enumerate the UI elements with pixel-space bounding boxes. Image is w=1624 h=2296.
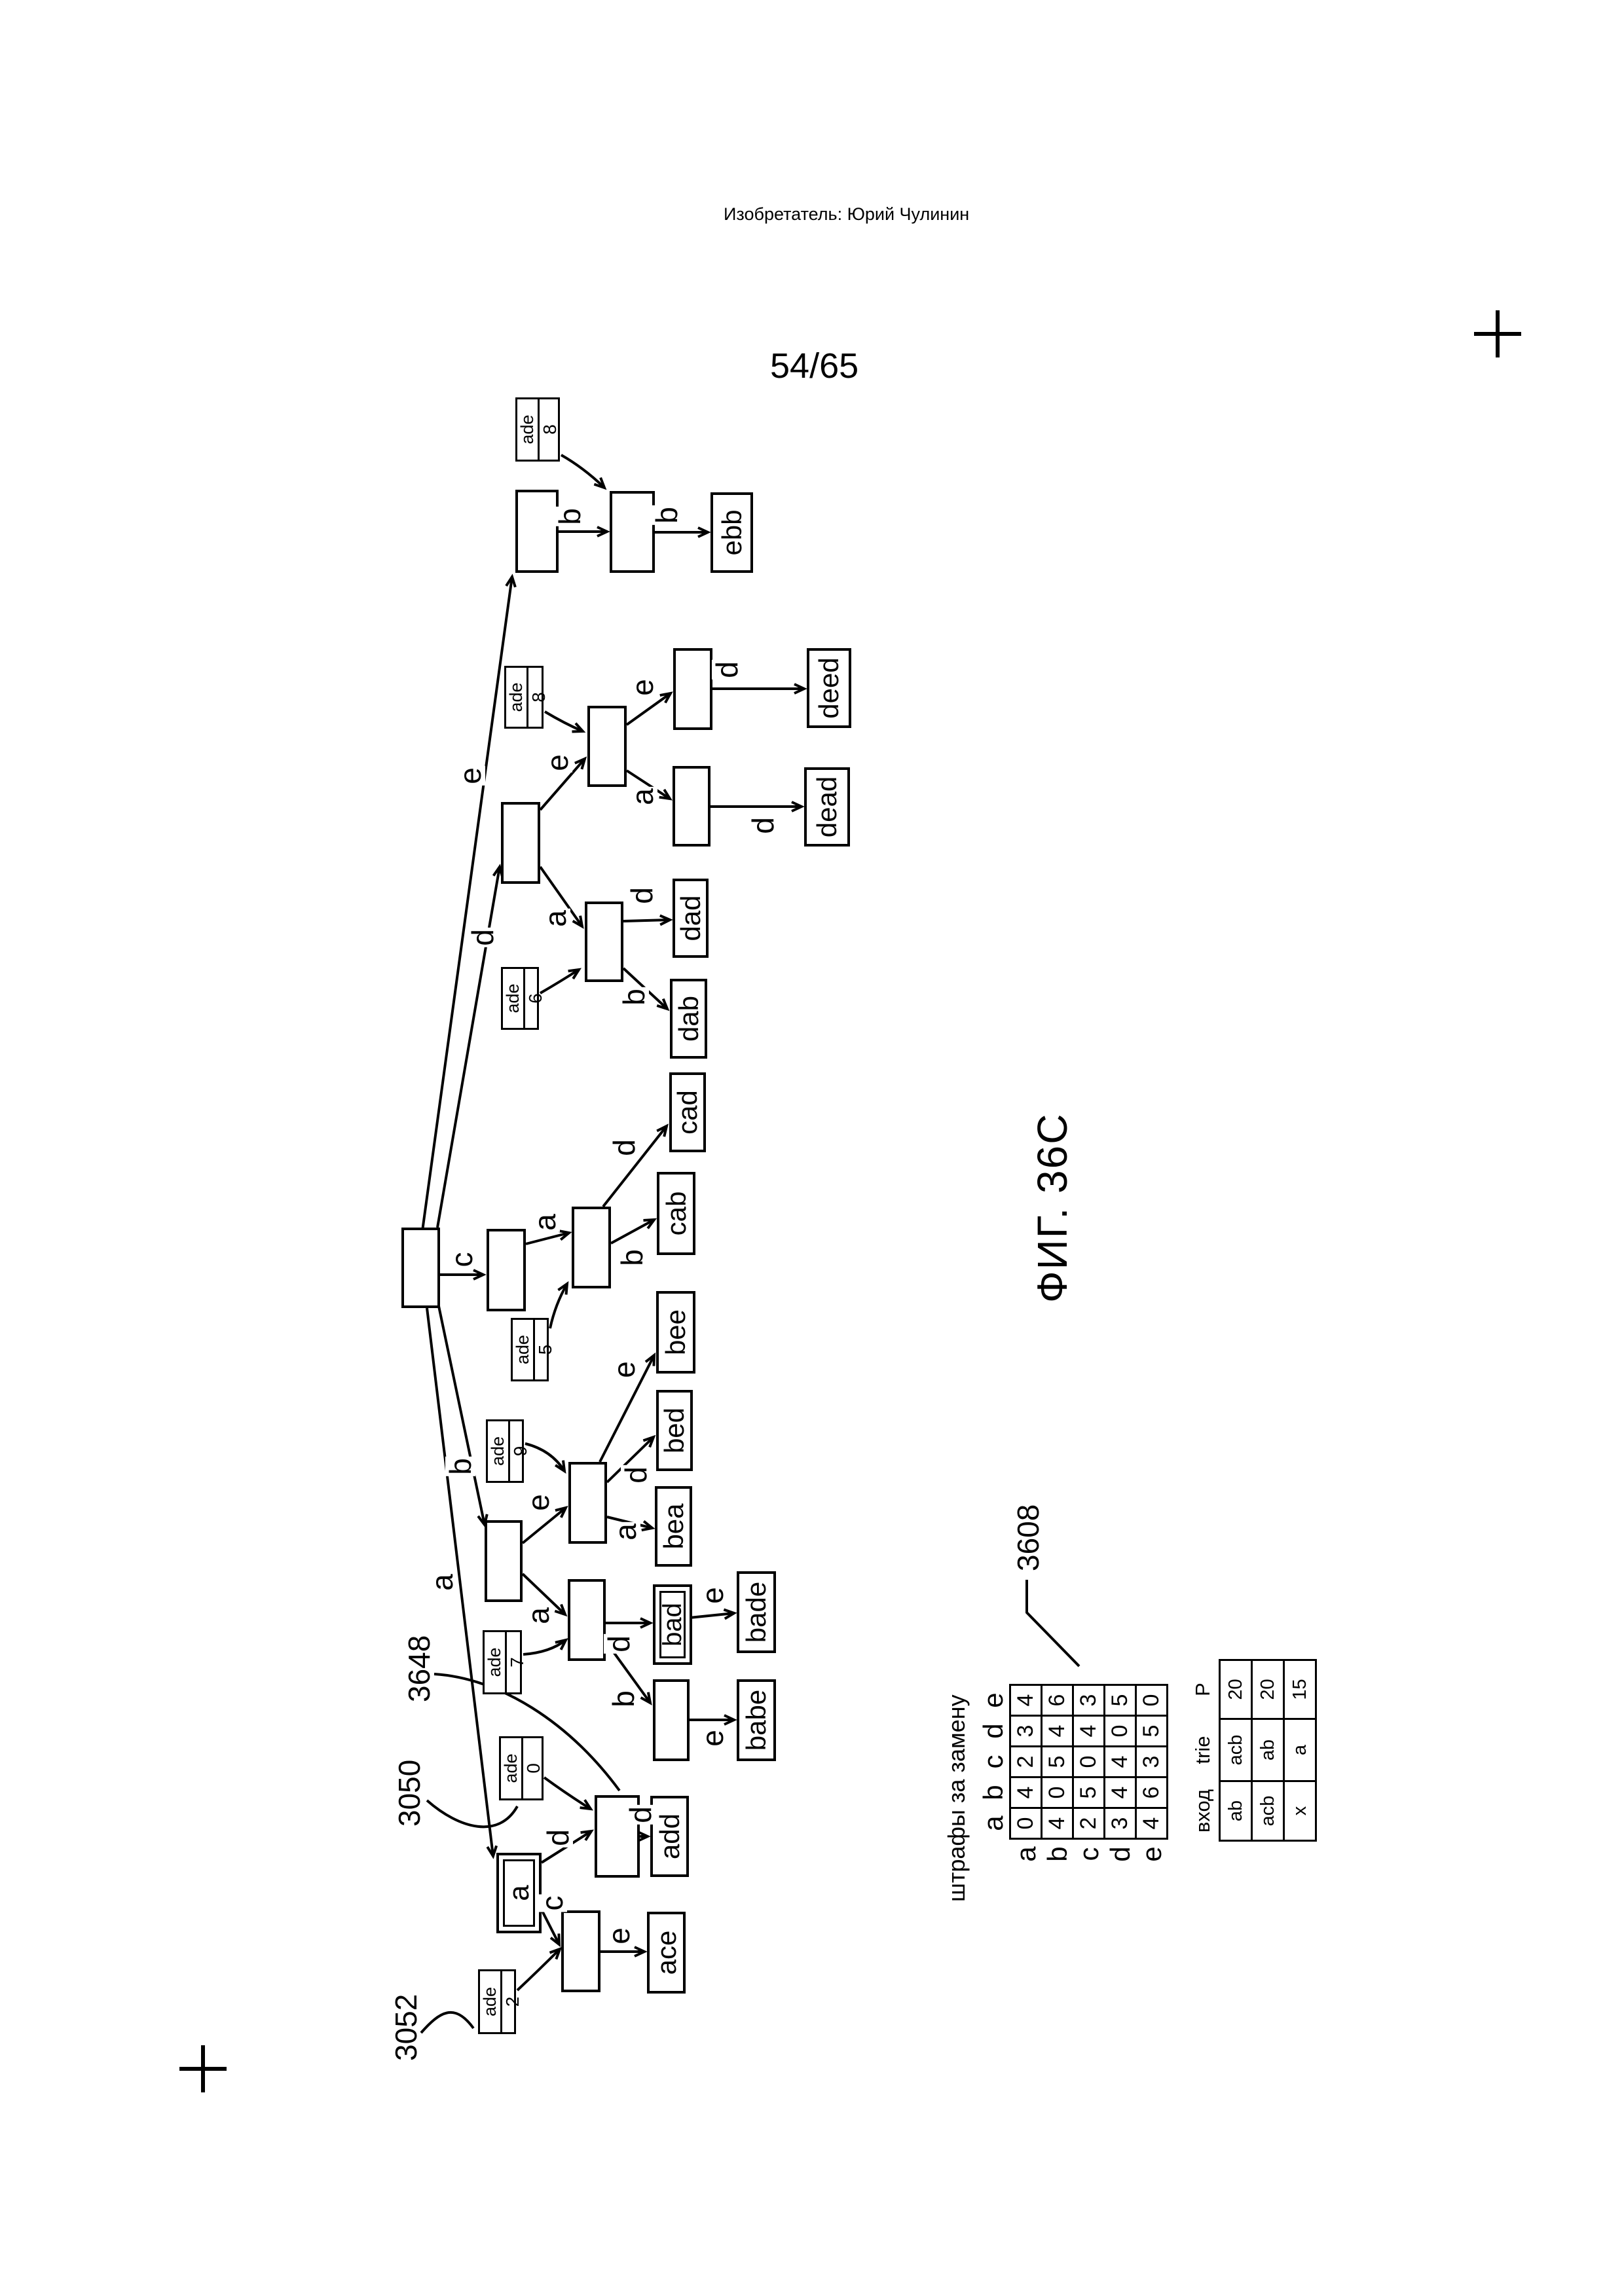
row-header: e [1136,1839,1168,1869]
table-cell: 5 [1105,1685,1136,1716]
leaf-bee: bee [656,1291,695,1374]
col-header: a [978,1808,1010,1839]
trie-node-root [401,1228,440,1308]
table-cell: 4 [1073,1716,1105,1747]
input-table-header: P [1187,1660,1220,1719]
edge-label-de-dea: a [627,787,657,807]
trie-node-b [485,1520,523,1602]
table-cell: 5 [1136,1716,1168,1747]
edge-label-b-ba: a [523,1606,553,1626]
edge-da-dad [623,920,670,921]
edge-a-ac [542,1910,559,1944]
ade-box-0-value: 0 [523,1738,544,1798]
ade-box-8e: ade 8 [515,397,560,462]
edge-root-e [422,577,512,1231]
edge-label-dee-deed: d [712,660,742,680]
table-cell: ab [1252,1719,1284,1781]
leaf-ace: ace [647,1912,686,1994]
leaf-dead: dead [804,767,850,847]
ade2-arrow [517,1949,560,1990]
ade7-arrow [523,1640,566,1654]
ade-box-8e-label: ade [517,399,540,460]
row-header: d [1105,1839,1136,1869]
edge-label-root-d: d [468,928,498,947]
ade8e-arrow [561,455,604,488]
substitution-table: a b c d e a 0 4 2 3 4 b 4 0 5 4 6 [978,1684,1168,1868]
table-cell: 4 [1042,1808,1073,1839]
col-header: e [978,1685,1010,1716]
edge-label-d-da: a [540,909,570,928]
trie-diagram: a ace add babe bad bade bea bed bee cab … [0,0,1624,2296]
leaf-bad-label: bad [659,1591,686,1658]
ade-box-6-value: 6 [525,969,546,1028]
ade-box-9-label: ade [488,1421,510,1481]
edge-label-b-be: e [523,1493,553,1512]
substitution-table-title: штрафы за замену [943,1694,970,1902]
leaf-dab: dab [670,979,707,1059]
ade-box-2-label: ade [480,1971,502,2032]
edge-bad-bade [690,1613,734,1618]
leaf-dad: dad [673,879,709,958]
ade9-arrow [525,1444,564,1471]
edge-label-root-c: c [447,1251,477,1269]
edge-label-c-ca: a [530,1212,560,1232]
trie-node-d [501,802,540,884]
table-cell: 0 [1105,1716,1136,1747]
table-cell: 4 [1136,1808,1168,1839]
leaf-cad: cad [669,1072,706,1152]
table-cell: 3 [1010,1716,1042,1747]
table-cell: 15 [1284,1660,1316,1719]
ade0-arrow [544,1777,591,1809]
edge-label-root-b: b [445,1457,475,1476]
ade-box-9: ade 9 [486,1419,524,1483]
trie-node-c [487,1229,526,1311]
table-cell: 4 [1010,1685,1042,1716]
edge-label-d-de: e [542,753,572,773]
leaf-bed: bed [656,1390,693,1471]
edge-ca-cab [611,1220,654,1243]
ade-box-8d-value: 8 [528,668,549,727]
trie-node-be [568,1462,607,1544]
table-cell: 3 [1073,1685,1105,1716]
ade-box-7-value: 7 [507,1632,528,1692]
table-cell: 3 [1105,1808,1136,1839]
col-header: b [978,1777,1010,1808]
input-table-header: trie [1187,1719,1220,1781]
ade-box-6-label: ade [503,969,525,1028]
ade-box-2: ade 2 [478,1969,516,2034]
edge-label-da-dad: d [627,886,657,905]
edge-label-da-dab: b [619,987,649,1007]
table-cell: 20 [1220,1660,1252,1719]
patent-figure-page: Изобретатель: Юрий Чулинин 54/65 [0,0,1624,2296]
edge-label-eb-ebb: b [652,505,682,525]
edge-de-dee [627,693,671,725]
trie-node-dea [673,766,710,847]
edge-label-ad-add: d [625,1805,655,1825]
trie-node-eb [610,491,655,573]
edge-label-a-ad: d [543,1828,573,1848]
table-cell: 0 [1010,1808,1042,1839]
ade8d-arrow [545,712,583,731]
col-header: c [978,1747,1010,1777]
table-corner [978,1839,1010,1869]
trie-node-a: a [496,1853,542,1933]
edge-label-ca-cad: d [609,1138,639,1157]
ade-box-5-value: 5 [535,1320,556,1379]
leaf-bad: bad [653,1584,692,1665]
table-cell: ab [1220,1781,1252,1841]
table-cell: 4 [1105,1747,1136,1777]
ade-box-2-value: 2 [502,1971,523,2032]
edge-root-b [439,1306,485,1525]
ref-3648: 3648 [401,1635,437,1702]
leader-3050 [427,1800,517,1827]
table-cell: 4 [1010,1777,1042,1808]
figure-caption: ФИГ. 36C [1028,1113,1077,1303]
edge-label-ac-ace: e [604,1926,634,1946]
table-cell: 6 [1136,1777,1168,1808]
ade-box-0-label: ade [501,1738,523,1798]
trie-node-e [515,490,559,573]
leaf-bea: bea [655,1486,692,1567]
table-cell: 2 [1010,1747,1042,1777]
edge-label-bad-bade: e [697,1586,728,1605]
input-table-header: вход [1187,1781,1220,1841]
table-cell: 5 [1042,1747,1073,1777]
trie-node-ba [568,1579,606,1661]
col-header: d [978,1716,1010,1747]
ade-box-5: ade 5 [511,1318,549,1381]
ade-box-7-label: ade [485,1632,507,1692]
row-header: b [1042,1839,1073,1869]
ade-box-8e-value: 8 [540,399,561,460]
leaf-deed: deed [807,648,851,728]
leader-3052 [421,2013,473,2033]
table-cell: acb [1252,1781,1284,1841]
leaf-bade: bade [737,1571,776,1653]
ade-box-6: ade 6 [501,967,539,1030]
ref-3050: 3050 [392,1760,427,1827]
edge-label-ca-cab: b [617,1248,647,1267]
trie-node-bab [653,1679,690,1761]
edge-label-ba-bad: d [604,1634,634,1654]
ref-3608: 3608 [1010,1504,1046,1571]
leader-3608 [1027,1580,1079,1666]
edge-label-a-ac: c [537,1895,567,1912]
table-cell: 4 [1105,1777,1136,1808]
trie-node-ac [561,1910,600,1992]
table-cell: x [1284,1781,1316,1841]
edge-c-ca [526,1233,569,1244]
table-cell: 0 [1136,1685,1168,1716]
edge-label-ba-bab: b [608,1689,638,1709]
table-cell: 4 [1042,1716,1073,1747]
table-cell: a [1284,1719,1316,1781]
table-cell: 20 [1252,1660,1284,1719]
ade-box-5-label: ade [513,1320,535,1379]
edge-label-root-a: a [427,1573,457,1592]
ade-box-8d: ade 8 [504,666,544,729]
ade-box-9-value: 9 [510,1421,531,1481]
leaf-cab: cab [657,1172,695,1255]
edge-b-be [523,1508,566,1543]
edge-label-e-eb: b [555,507,585,526]
trie-node-de [587,706,627,787]
table-cell: 3 [1136,1747,1168,1777]
leaf-ebb: ebb [710,492,753,573]
ref-3052: 3052 [388,1994,424,2061]
ade-box-0: ade 0 [499,1736,544,1800]
row-header: a [1010,1839,1042,1869]
edge-label-be-bee: e [609,1360,639,1379]
ade-box-7: ade 7 [483,1630,522,1694]
leaf-babe: babe [737,1679,776,1761]
table-cell: 0 [1073,1747,1105,1777]
edge-label-be-bea: a [610,1522,640,1542]
trie-node-dee [673,648,712,730]
edge-label-root-e: e [455,766,485,786]
table-cell: 6 [1042,1685,1073,1716]
trie-node-da [585,902,623,982]
ade-box-8d-label: ade [506,668,528,727]
row-header: c [1073,1839,1105,1869]
table-cell: 5 [1073,1777,1105,1808]
trie-node-a-label: a [503,1859,535,1927]
input-table: вход trie P ab acb 20 acb ab 20 x a 15 [1187,1659,1317,1842]
edge-label-be-bed: d [621,1465,651,1485]
table-cell: 0 [1042,1777,1073,1808]
edge-label-bab-babe: e [697,1728,728,1748]
table-cell: 2 [1073,1808,1105,1839]
table-cell: acb [1220,1719,1252,1781]
edge-label-dea-dead: d [748,816,778,835]
edges-layer [0,0,1624,2296]
edge-label-de-dee: e [627,678,657,697]
trie-node-ca [572,1207,611,1288]
